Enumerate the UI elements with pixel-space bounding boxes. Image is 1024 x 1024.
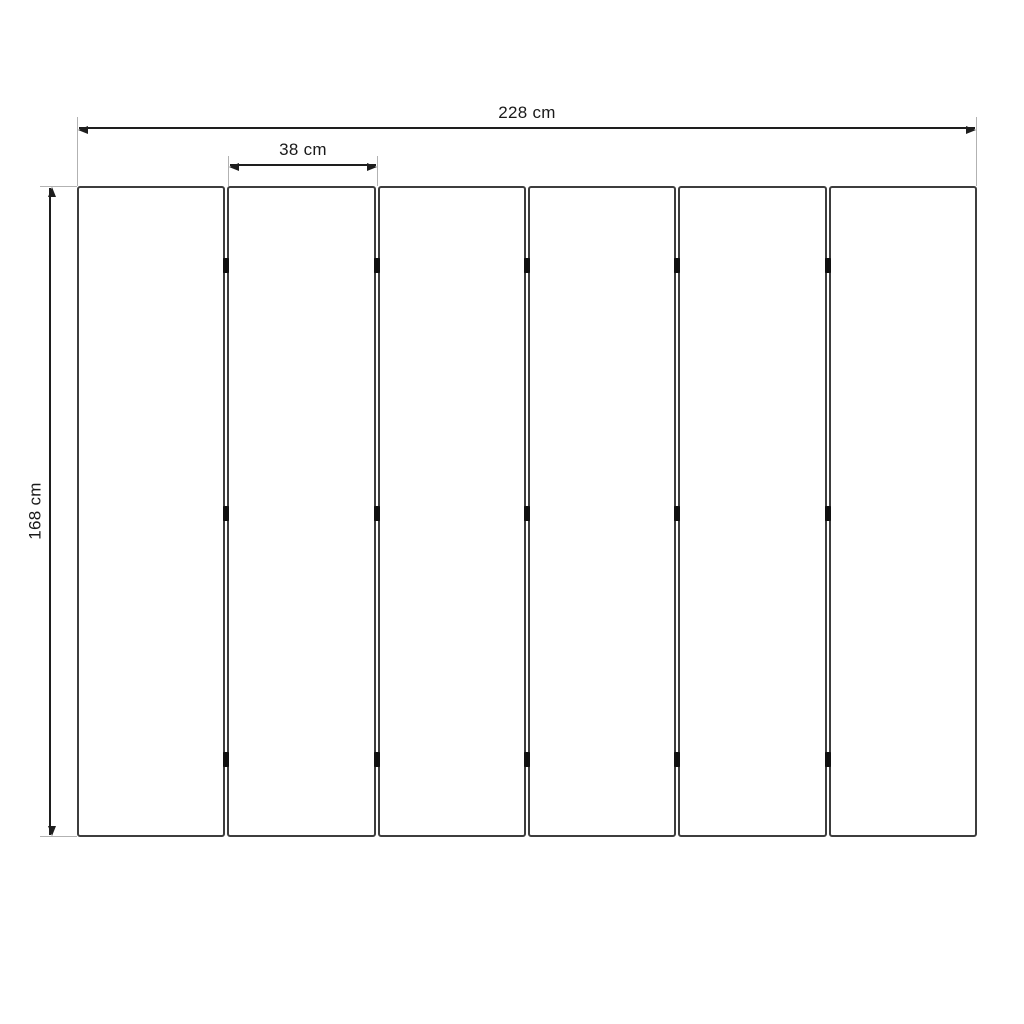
hinge-mark (674, 752, 680, 767)
hinge-mark (524, 752, 530, 767)
arrowhead-down-icon (48, 826, 56, 836)
hinge-mark (524, 506, 530, 521)
hinge-mark (825, 506, 831, 521)
hinge-mark (374, 752, 380, 767)
panel-4 (528, 186, 676, 837)
height-label: 168 cm (27, 482, 44, 540)
hinge-mark (524, 258, 530, 273)
panel-3 (378, 186, 526, 837)
arrowhead-left-icon (78, 126, 88, 134)
extension-line (228, 156, 229, 186)
hinge-mark (674, 258, 680, 273)
panel-5 (678, 186, 826, 837)
extension-line (40, 836, 77, 837)
arrowhead-right-icon (966, 126, 976, 134)
hinge-mark (223, 258, 229, 273)
panel-2 (227, 186, 375, 837)
hinge-mark (223, 506, 229, 521)
dimension-line (79, 127, 975, 129)
hinge-mark (825, 752, 831, 767)
extension-line (40, 186, 77, 187)
total-width-label: 228 cm (77, 104, 977, 121)
panel-width-label: 38 cm (228, 141, 378, 158)
arrowhead-up-icon (48, 187, 56, 197)
extension-line (976, 117, 977, 186)
panel-1 (77, 186, 225, 837)
dimension-line (230, 164, 376, 166)
hinge-mark (825, 258, 831, 273)
hinge-mark (674, 506, 680, 521)
arrowhead-right-icon (367, 163, 377, 171)
hinge-mark (223, 752, 229, 767)
extension-line (377, 156, 378, 186)
panels-row (77, 186, 977, 837)
hinge-mark (374, 258, 380, 273)
panel-6 (829, 186, 977, 837)
folding-screen-diagram: 228 cm 38 cm 168 cm (0, 0, 1024, 1024)
dimension-line (49, 188, 51, 835)
hinge-mark (374, 506, 380, 521)
arrowhead-left-icon (229, 163, 239, 171)
